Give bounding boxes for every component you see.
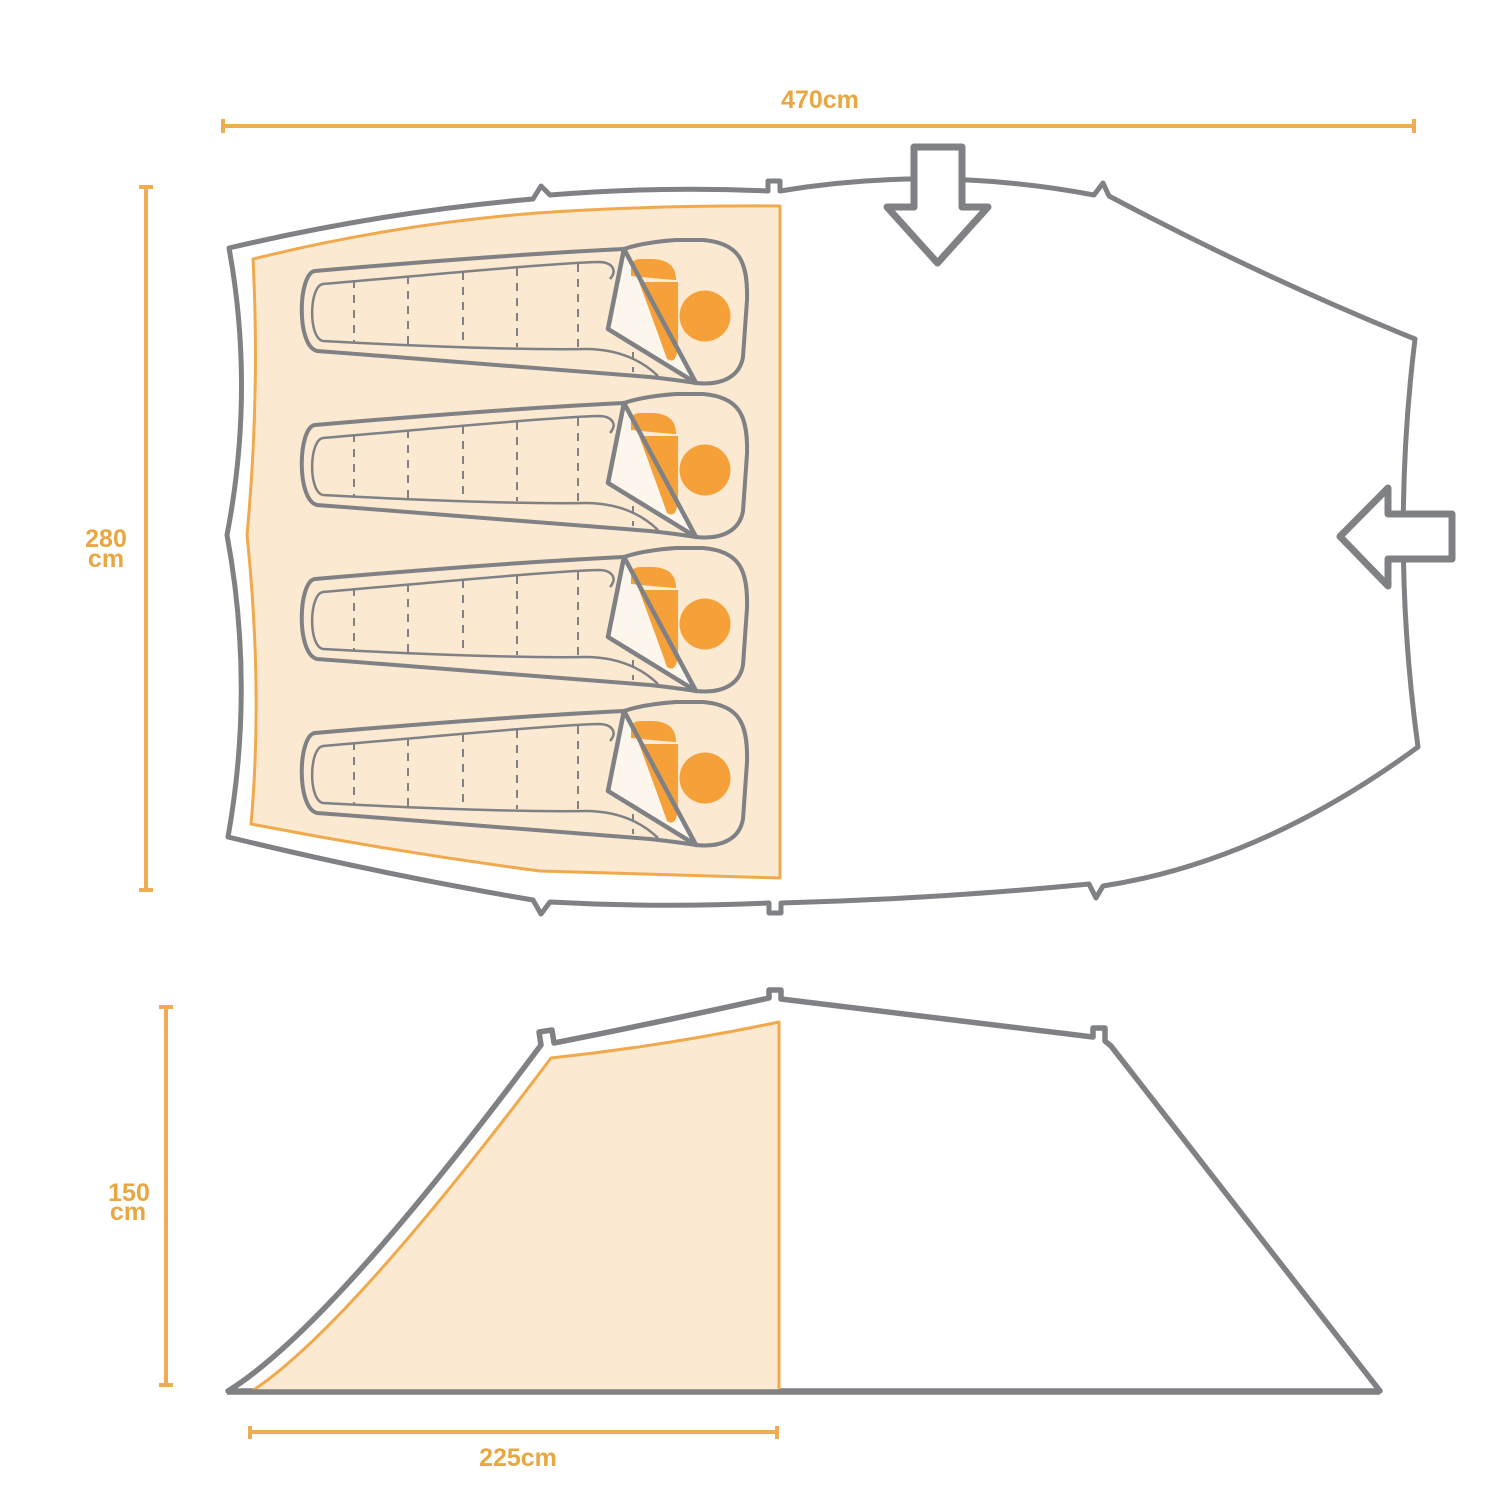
svg-text:cm: cm [110,1198,146,1226]
svg-text:cm: cm [88,545,124,573]
svg-text:225cm: 225cm [479,1444,557,1472]
svg-text:470cm: 470cm [781,86,859,114]
